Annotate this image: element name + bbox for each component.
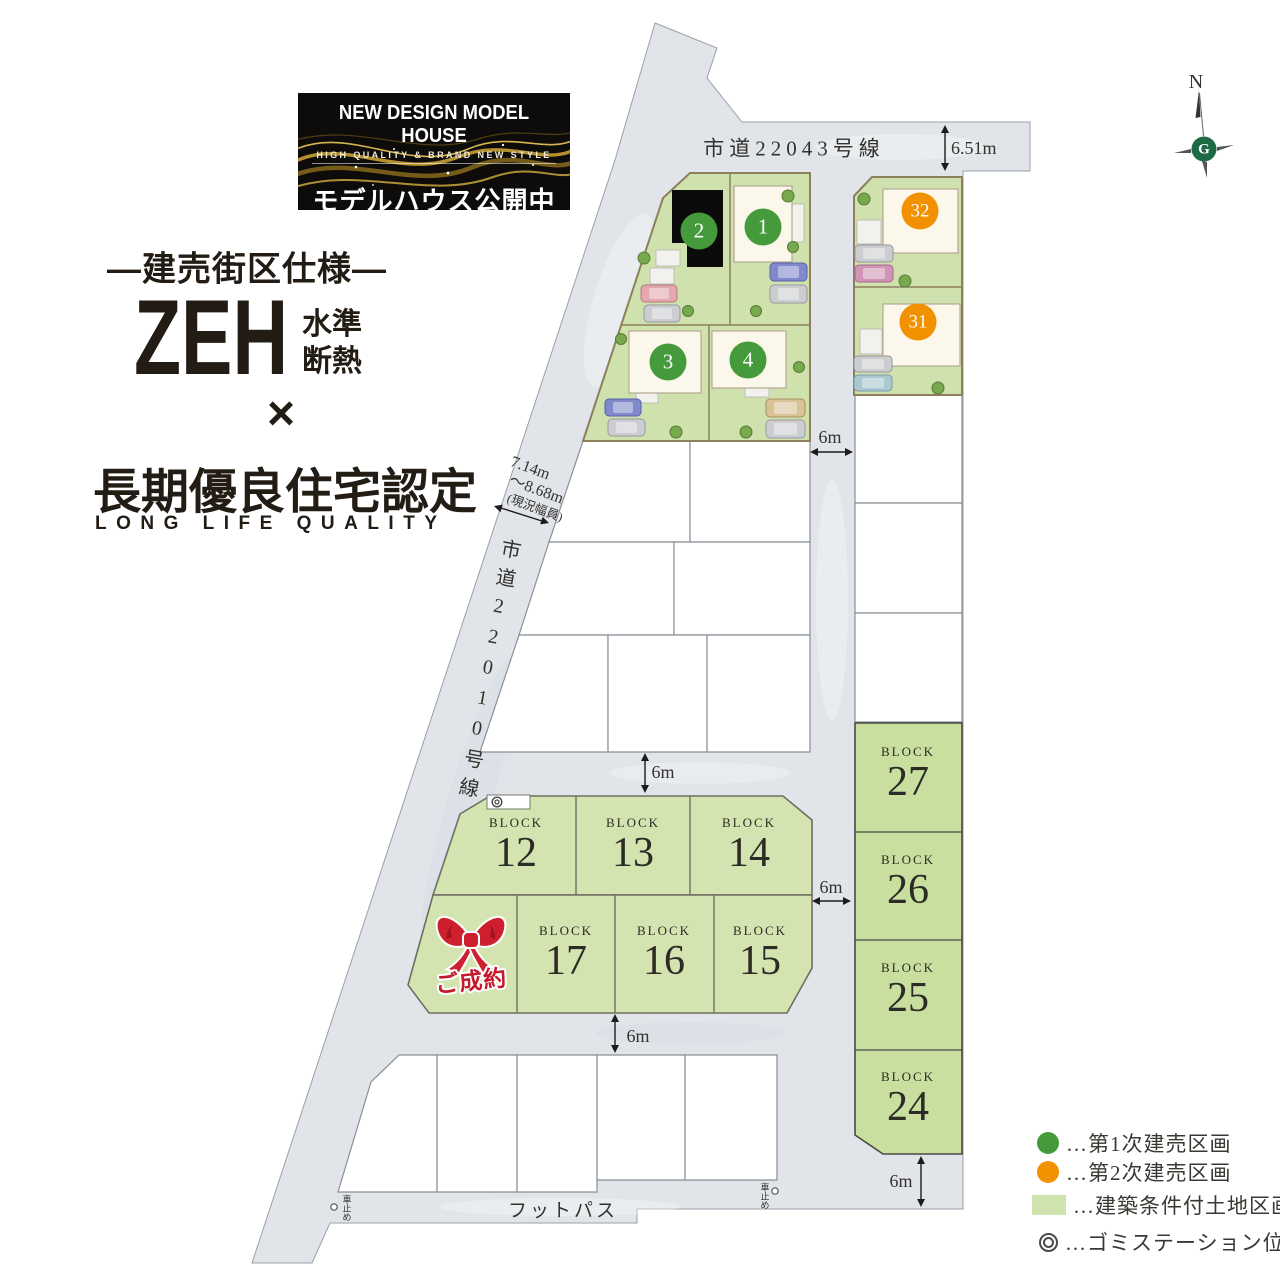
road-width-label: 6m: [819, 878, 842, 896]
block-27-label: BLOCK27: [881, 745, 935, 803]
unit-2-number: 2: [694, 221, 705, 242]
tree-icon: [932, 382, 944, 394]
legend-item-garbage-station: …ゴミステーション位置: [1039, 1227, 1280, 1257]
vacant-lot: [597, 1055, 685, 1180]
block-14-label: BLOCK14: [722, 816, 776, 874]
phase1-dot-icon: [1037, 1132, 1059, 1154]
block-12-label: BLOCK12: [489, 816, 543, 874]
unit-32-number: 32: [911, 202, 930, 221]
tree-icon: [638, 252, 650, 264]
banner-divider: [312, 163, 556, 164]
tree-icon: [782, 190, 794, 202]
tree-icon: [899, 275, 911, 287]
cert-heading: 長期優良住宅認定: [93, 452, 477, 522]
tree-icon: [751, 306, 762, 317]
legend-item-phase1: …第1次建売区画: [1037, 1128, 1232, 1158]
top-road-name: 市道22043号線: [703, 139, 885, 160]
vacant-lot: [707, 635, 810, 752]
vacant-lot: [674, 542, 810, 635]
unit-4-number: 4: [743, 350, 754, 371]
compass-icon: [1174, 90, 1234, 178]
tree-icon: [740, 426, 752, 438]
zeh-suffix-bottom: 断熱: [302, 336, 362, 380]
vacant-lot: [855, 503, 962, 613]
compass-logo-letter: G: [1198, 143, 1210, 158]
vacant-lot: [690, 441, 810, 542]
block-24-label: BLOCK24: [881, 1070, 935, 1128]
banner-caption: モデルハウス公開中: [298, 181, 570, 210]
site-plan-flyer: 市道22043号線 6.51m 市道22010号線 7.14m 〜8.68m (…: [0, 0, 1280, 1280]
phase2-dot-icon: [1037, 1161, 1059, 1183]
road-width-label: 6m: [651, 763, 674, 781]
unit-3-number: 3: [663, 352, 674, 373]
model-house-banner: NEW DESIGN MODEL HOUSE HIGH QUALITY & BR…: [298, 93, 570, 210]
tree-icon: [670, 426, 682, 438]
car-stop-bollard: [331, 1204, 337, 1210]
multiply-sign: ×: [267, 387, 295, 442]
unit-31-number: 31: [909, 313, 928, 332]
zeh-heading: ZEH: [134, 287, 288, 389]
banner-title: NEW DESIGN MODEL HOUSE: [309, 102, 559, 148]
vacant-lot: [437, 1055, 517, 1192]
car-stop-bollard: [772, 1188, 778, 1194]
legend-label: …ゴミステーション位置: [1065, 1227, 1280, 1257]
car-stop-label: 車止め: [342, 1195, 351, 1222]
vacant-lot: [608, 635, 707, 752]
tree-icon: [683, 306, 694, 317]
tree-icon: [788, 242, 799, 253]
conditional-land-square-icon: [1032, 1195, 1066, 1215]
road-width-label: 6m: [818, 428, 841, 446]
legend-item-conditional-land: …建築条件付土地区画: [1032, 1190, 1280, 1220]
block-17-label: BLOCK17: [539, 924, 593, 982]
tree-icon: [858, 193, 870, 205]
block-16-label: BLOCK16: [637, 924, 691, 982]
vacant-lot: [855, 613, 962, 722]
vacant-lot: [855, 395, 962, 503]
car-stop-label: 車止め: [760, 1183, 769, 1210]
cert-subheading: LONG LIFE QUALITY: [95, 513, 447, 535]
legend-label: …建築条件付土地区画: [1073, 1190, 1280, 1220]
block-13-label: BLOCK13: [606, 816, 660, 874]
block-15-label: BLOCK15: [733, 924, 787, 982]
vacant-lot: [685, 1055, 777, 1180]
tree-icon: [616, 334, 627, 345]
footpath-label: フットパス: [508, 1202, 618, 1221]
compass-north-label: N: [1189, 72, 1203, 92]
top-road-width-label: 6.51m: [951, 139, 997, 157]
banner-subtitle: HIGH QUALITY & BRAND NEW STYLE: [298, 150, 570, 160]
tree-icon: [794, 362, 805, 373]
road-width-label: 6m: [889, 1172, 912, 1190]
legend-label: …第2次建売区画: [1066, 1157, 1232, 1187]
block-26-label: BLOCK26: [881, 853, 935, 911]
block-25-label: BLOCK25: [881, 961, 935, 1019]
road-width-label: 6m: [626, 1027, 649, 1045]
garbage-station-mark-icon: [1039, 1233, 1058, 1252]
unit-1-number: 1: [758, 217, 769, 238]
garbage-station-icon: [487, 795, 530, 809]
site-plan-map: [0, 0, 1280, 1280]
legend-item-phase2: …第2次建売区画: [1037, 1157, 1232, 1187]
vacant-lot: [517, 1055, 597, 1192]
legend-label: …第1次建売区画: [1066, 1128, 1232, 1158]
